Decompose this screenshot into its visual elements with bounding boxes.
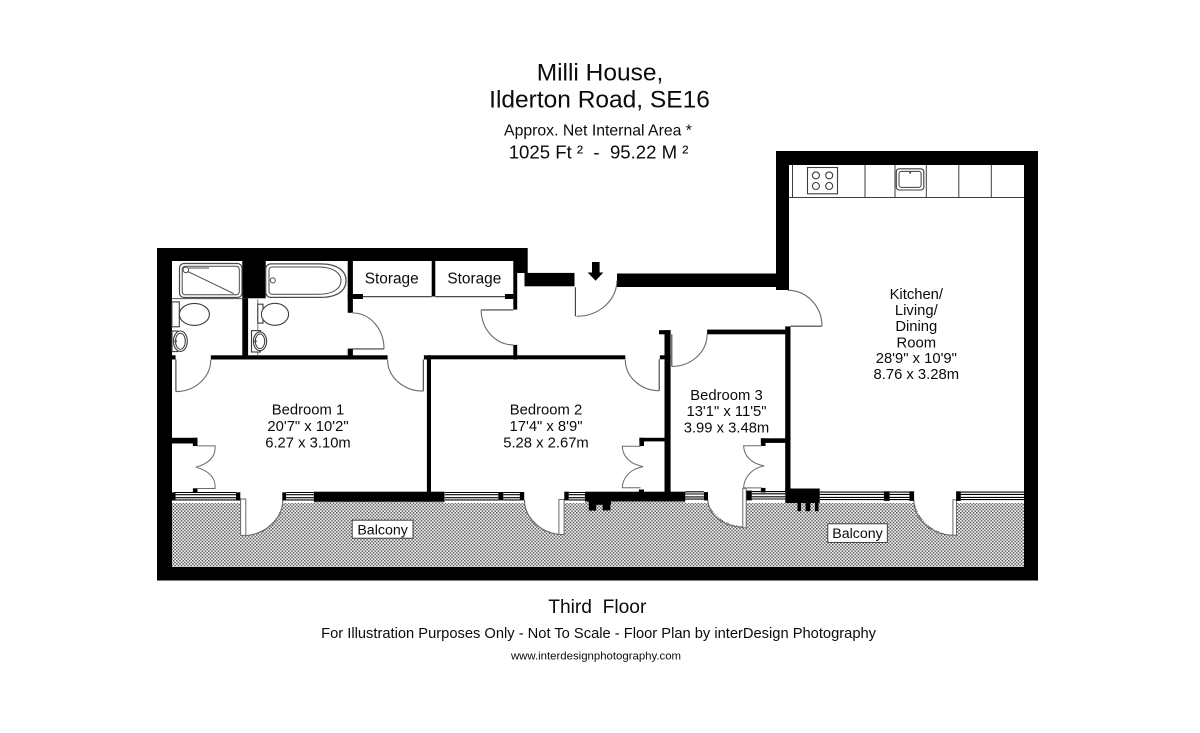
svg-text:Storage: Storage <box>447 271 501 288</box>
svg-text:Bedroom 2: Bedroom 2 <box>510 403 582 419</box>
svg-text:13'1" x 11'5": 13'1" x 11'5" <box>686 404 766 420</box>
svg-text:8.76 x 3.28m: 8.76 x 3.28m <box>874 367 960 383</box>
svg-text:Bedroom 3: Bedroom 3 <box>690 388 762 404</box>
svg-text:www.interdesignphotography.com: www.interdesignphotography.com <box>510 651 681 663</box>
svg-text:Balcony: Balcony <box>832 526 883 542</box>
svg-text:Milli House,: Milli House, <box>537 60 664 87</box>
svg-text:Kitchen/: Kitchen/ <box>890 287 944 303</box>
svg-text:17'4" x 8'9": 17'4" x 8'9" <box>510 419 583 435</box>
svg-text:Room: Room <box>897 335 936 351</box>
svg-text:1025 Ft ² - 95.22 M ²: 1025 Ft ² - 95.22 M ² <box>509 141 689 162</box>
svg-text:Storage: Storage <box>365 271 419 288</box>
svg-text:Balcony: Balcony <box>357 522 408 538</box>
svg-text:Bedroom 1: Bedroom 1 <box>272 403 344 419</box>
svg-text:Living/: Living/ <box>895 303 939 319</box>
svg-text:Approx. Net Internal Area *: Approx. Net Internal Area * <box>504 123 692 140</box>
svg-text:For Illustration Purposes Only: For Illustration Purposes Only - Not To … <box>321 626 877 642</box>
svg-text:5.28 x 2.67m: 5.28 x 2.67m <box>503 436 589 452</box>
svg-text:Dining: Dining <box>895 319 937 335</box>
svg-text:Ilderton Road, SE16: Ilderton Road, SE16 <box>489 87 710 114</box>
svg-text:28'9" x 10'9": 28'9" x 10'9" <box>876 351 957 367</box>
svg-text:20'7" x 10'2": 20'7" x 10'2" <box>267 419 348 435</box>
svg-text:Third Floor: Third Floor <box>548 597 647 618</box>
svg-text:6.27 x 3.10m: 6.27 x 3.10m <box>265 436 351 452</box>
svg-text:3.99 x 3.48m: 3.99 x 3.48m <box>684 421 770 437</box>
